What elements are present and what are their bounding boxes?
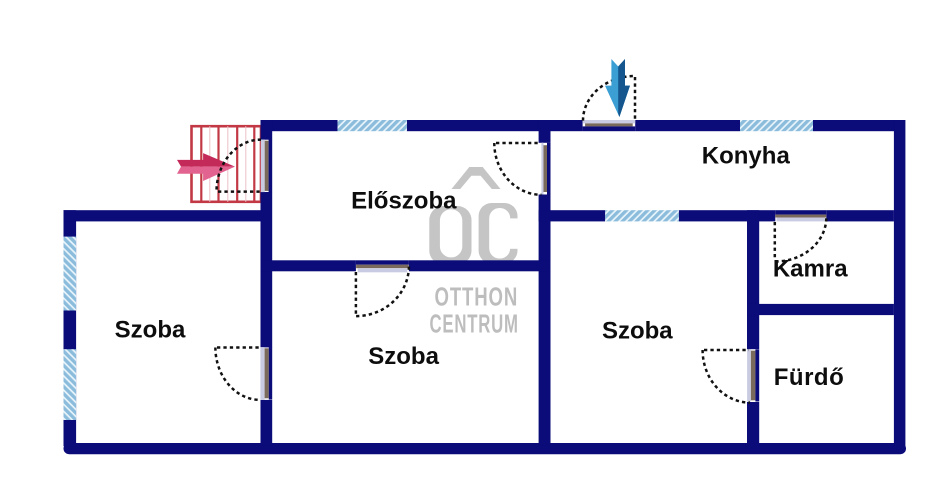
svg-text:Szoba: Szoba <box>368 343 439 370</box>
svg-text:Konyha: Konyha <box>702 143 791 170</box>
svg-text:CENTRUM: CENTRUM <box>430 309 519 339</box>
svg-text:Kamra: Kamra <box>773 255 848 282</box>
svg-text:Szoba: Szoba <box>115 317 186 344</box>
svg-text:Előszoba: Előszoba <box>351 188 457 215</box>
svg-text:Fürdő: Fürdő <box>774 364 844 391</box>
svg-text:Szoba: Szoba <box>602 318 673 345</box>
svg-text:OTTHON: OTTHON <box>435 282 519 311</box>
